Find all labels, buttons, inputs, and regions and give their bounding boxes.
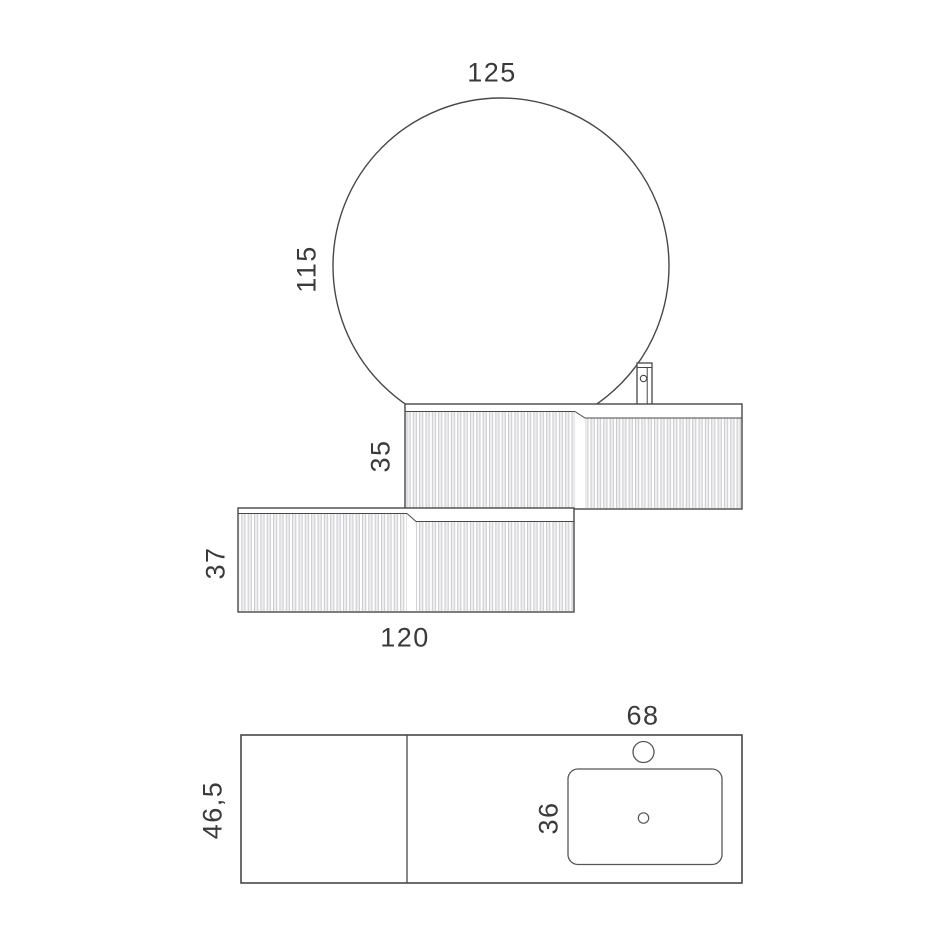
dim-label-washbasin-cabinet-height: 35 — [366, 439, 397, 472]
dim-label-mirror-width: 125 — [467, 58, 517, 89]
washbasin-cabinet-fluting-right — [585, 418, 741, 508]
washbasin-cabinet-fluting-left — [406, 412, 575, 509]
dim-label-drawer-cabinet-width: 120 — [380, 623, 430, 654]
vanity-line-drawing — [0, 0, 950, 950]
mirror-circle — [333, 98, 669, 434]
faucet-body — [637, 363, 652, 405]
drain-hole — [638, 813, 648, 823]
dim-label-drawer-cabinet-height: 37 — [201, 546, 232, 579]
dim-label-countertop-depth: 46,5 — [198, 781, 229, 840]
washbasin-cabinet — [405, 404, 742, 509]
countertop-top-view — [241, 735, 742, 883]
dim-label-basin-section-width: 68 — [626, 701, 659, 732]
dim-label-basin-depth: 36 — [534, 801, 565, 834]
drawer-cabinet — [238, 508, 574, 612]
faucet-handle-dot — [640, 375, 646, 381]
technical-drawing-canvas: 125 115 35 37 120 68 46,5 36 — [0, 0, 950, 950]
faucet-hole — [633, 742, 654, 763]
dim-label-mirror-height: 115 — [292, 245, 323, 293]
drawer-cabinet-fluting-left — [239, 514, 407, 611]
faucet-front-view — [637, 363, 652, 405]
drawer-cabinet-fluting-right — [416, 522, 573, 611]
